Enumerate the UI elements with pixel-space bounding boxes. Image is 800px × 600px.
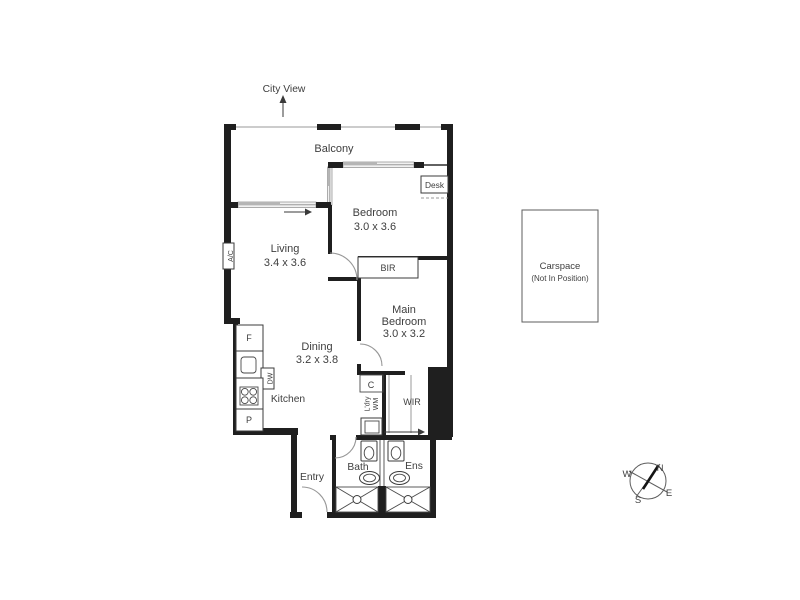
bedroom-window — [343, 162, 414, 168]
fridge-label: F — [246, 333, 252, 343]
dishwasher-label: DW — [268, 372, 275, 384]
ac-label: A/C — [228, 250, 235, 262]
laundry-label-2: WM — [373, 398, 380, 411]
cupboard-label: C — [368, 380, 375, 390]
floor-plan-image: City View — [0, 0, 800, 600]
compass-east-label: E — [666, 488, 672, 499]
compass-south-label: S — [635, 495, 641, 506]
entry-label: Entry — [300, 472, 325, 483]
wir-label: WIR — [403, 397, 421, 407]
compass-north-label: N — [657, 463, 664, 474]
bath-toilet-icon — [361, 441, 377, 461]
laundry-label-1: L'dry — [365, 396, 372, 411]
bath-shower-icon — [336, 487, 378, 512]
bedroom-label: Bedroom — [353, 207, 398, 219]
bath-door-arc — [335, 437, 356, 458]
main-bedroom-label-2: Bedroom — [382, 316, 427, 328]
ens-toilet-icon — [388, 441, 404, 461]
dining-dimensions: 3.2 x 3.8 — [296, 354, 338, 366]
main-bedroom-label-1: Main — [392, 304, 416, 316]
carspace-label: Carspace — [540, 261, 581, 272]
bedroom-door-arc — [330, 253, 357, 280]
kitchen-label: Kitchen — [271, 394, 306, 405]
city-view-label: City View — [263, 84, 306, 95]
living-dimensions: 3.4 x 3.6 — [264, 257, 306, 269]
balcony-label: Balcony — [314, 143, 354, 155]
desk-label: Desk — [425, 180, 445, 190]
ens-basin-icon — [390, 472, 410, 485]
desk: Desk — [421, 176, 448, 198]
compass-rose: N W E S — [623, 463, 673, 506]
ens-label: Ens — [405, 461, 423, 472]
bedroom-side-window — [328, 167, 333, 205]
main-bedroom-dimensions: 3.0 x 3.2 — [383, 328, 425, 340]
carspace-note: (Not In Position) — [531, 274, 589, 283]
dining-label: Dining — [301, 341, 332, 353]
main-bedroom-door-arc — [360, 344, 382, 366]
wir-arrow-icon — [418, 429, 425, 436]
carspace: Carspace (Not In Position) — [522, 210, 598, 322]
bath-label: Bath — [347, 462, 368, 473]
living-window — [238, 202, 316, 208]
north-view-arrow-icon — [280, 95, 287, 103]
bath-basin-icon — [360, 472, 380, 485]
kitchen-fixtures: F DW P — [236, 325, 275, 431]
compass-west-label: W — [623, 469, 632, 480]
ac-unit: A/C — [223, 243, 235, 269]
ens-shower-icon — [386, 487, 430, 512]
living-label: Living — [271, 243, 300, 255]
laundry: C L'dry WM — [360, 375, 383, 435]
bedroom-dimensions: 3.0 x 3.6 — [354, 221, 396, 233]
pantry-label: P — [246, 415, 252, 425]
sliding-door-arrow-icon — [305, 209, 312, 216]
floor-plan-page: City View — [0, 0, 800, 600]
sink-box — [236, 351, 263, 378]
entry-door-arc — [302, 487, 327, 512]
city-view-annotation: City View — [263, 84, 306, 117]
bir-label: BIR — [380, 263, 396, 273]
